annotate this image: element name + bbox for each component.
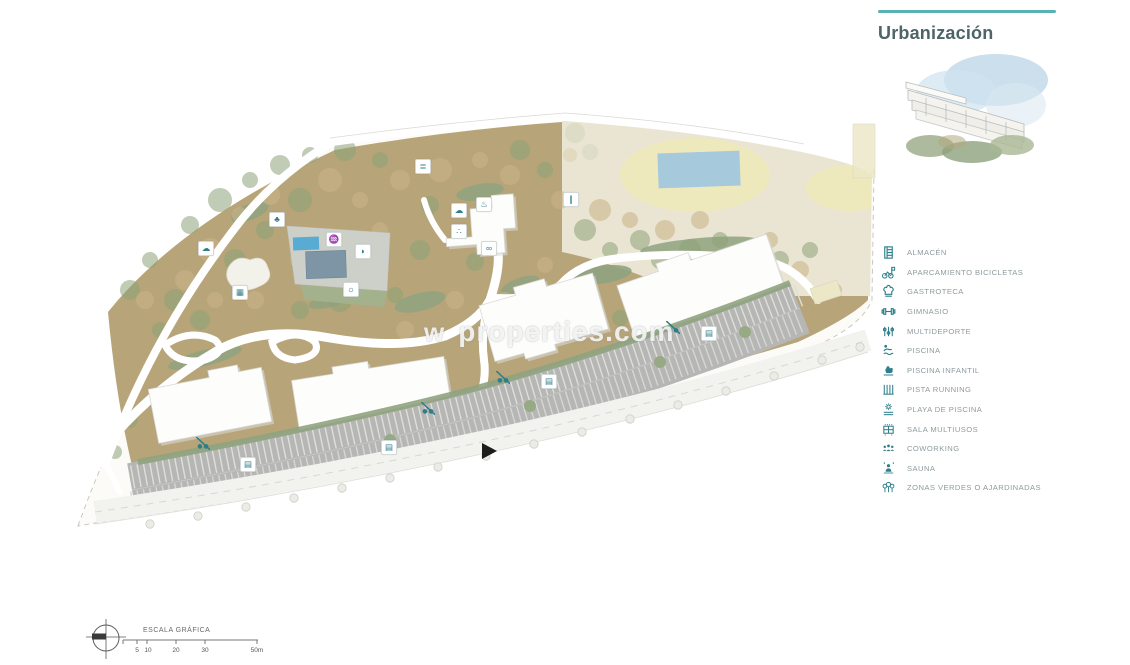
- scale-tick: 30: [201, 647, 209, 654]
- legend-item-gastroteca: GASTROTECA: [880, 282, 1120, 302]
- second-oval: [806, 165, 894, 211]
- scale-tick: 5: [135, 647, 139, 654]
- bicycle-icon: [880, 264, 897, 280]
- legend-label: MULTIDEPORTE: [907, 327, 971, 336]
- scale-bar: ESCALA GRÁFICA 5 10 20 30 50m: [123, 625, 263, 654]
- legend-label: SAUNA: [907, 464, 935, 473]
- chef-hat-marker: ☁: [198, 241, 214, 256]
- sauna-marker: ♨: [476, 197, 492, 212]
- dumbbell-marker: ∞: [481, 241, 497, 256]
- running-marker: ∥: [563, 192, 579, 207]
- legend-label: ZONAS VERDES O AJARDINADAS: [907, 483, 1041, 492]
- legend-item-zonas-verdes: ZONAS VERDES O AJARDINADAS: [880, 478, 1120, 498]
- green-zones-icon: [880, 480, 897, 496]
- bike-marker: [196, 437, 210, 450]
- storage-marker: ▤: [240, 457, 256, 472]
- legend-label: ALMACÉN: [907, 248, 947, 257]
- legend-label: SALA MULTIUSOS: [907, 425, 978, 434]
- multisport-icon: [880, 323, 897, 339]
- duck-icon: [880, 362, 897, 378]
- multisport-marker: ≣: [415, 159, 431, 174]
- scale-tick: 20: [172, 647, 180, 654]
- bike-marker: [666, 321, 680, 334]
- lap-pool: [657, 151, 740, 189]
- main-pool: [306, 250, 347, 278]
- multiuse-room-marker: ▦: [232, 285, 248, 300]
- info-panel: Urbanización: [878, 10, 1058, 44]
- legend-item-almacen: ALMACÉN: [880, 243, 1120, 263]
- bright-pool: [293, 237, 319, 251]
- legend-item-sala-multiusos: SALA MULTIUSOS: [880, 419, 1120, 439]
- dumbbell-icon: [880, 304, 897, 320]
- legend-item-playa-piscina: SALA MULTIUSOS PLAYA DE PISCINA: [880, 400, 1120, 420]
- legend-item-gimnasio: GIMNASIO: [880, 302, 1120, 322]
- legend-item-piscina-infantil: PISCINA INFANTIL: [880, 361, 1120, 381]
- multiuse-room-icon: [880, 421, 897, 437]
- bike-marker: [421, 402, 435, 415]
- legend-label: GIMNASIO: [907, 307, 949, 316]
- legend-label: APARCAMIENTO BICICLETAS: [907, 268, 1023, 277]
- scale-tick: 10: [144, 647, 152, 654]
- sun-deck-icon: [880, 402, 897, 418]
- legend-item-pista-running: PISTA RUNNING: [880, 380, 1120, 400]
- legend-item-sauna: SAUNA: [880, 459, 1120, 479]
- storage-marker: ▤: [541, 374, 557, 389]
- legend-item-bicicletas: APARCAMIENTO BICICLETAS: [880, 263, 1120, 283]
- chef-hat-marker: ☁: [451, 203, 467, 218]
- running-track-icon: [880, 382, 897, 398]
- scale-tick: 50m: [251, 647, 264, 654]
- accent-rule: [878, 10, 1056, 13]
- building-rendering: [896, 50, 1052, 168]
- sauna-icon: [880, 460, 897, 476]
- chef-hat-icon: [880, 284, 897, 300]
- legend-item-multideporte: MULTIDEPORTE: [880, 321, 1120, 341]
- storage-marker: ▤: [381, 440, 397, 455]
- legend-item-coworking: COWORKING: [880, 439, 1120, 459]
- infant-pool-marker: ◗: [355, 244, 371, 259]
- coworking-icon: [880, 441, 897, 457]
- compass: [86, 619, 126, 659]
- pool-beach-marker: ☼: [343, 282, 359, 297]
- storage-marker: ▤: [701, 326, 717, 341]
- legend-label: PISCINA: [907, 346, 941, 355]
- pool-icon: [880, 343, 897, 359]
- legend: ALMACÉN APARCAMIENTO BICICLETAS GASTROTE…: [880, 243, 1120, 498]
- legend-label: GASTROTECA: [907, 287, 964, 296]
- page-title: Urbanización: [878, 23, 1058, 44]
- legend-label: PISTA RUNNING: [907, 385, 971, 394]
- pool-marker: ♒: [326, 232, 342, 247]
- bike-marker: [496, 371, 510, 384]
- legend-item-piscina: PISCINA: [880, 341, 1120, 361]
- green-zone-marker: ♣: [269, 212, 285, 227]
- coworking-marker: ∴: [451, 224, 467, 239]
- legend-label: PISCINA INFANTIL: [907, 366, 980, 375]
- legend-label: COWORKING: [907, 444, 960, 453]
- legend-label: PLAYA DE PISCINA: [907, 405, 982, 414]
- storage-icon: [880, 245, 897, 261]
- scale-title: ESCALA GRÁFICA: [143, 625, 210, 634]
